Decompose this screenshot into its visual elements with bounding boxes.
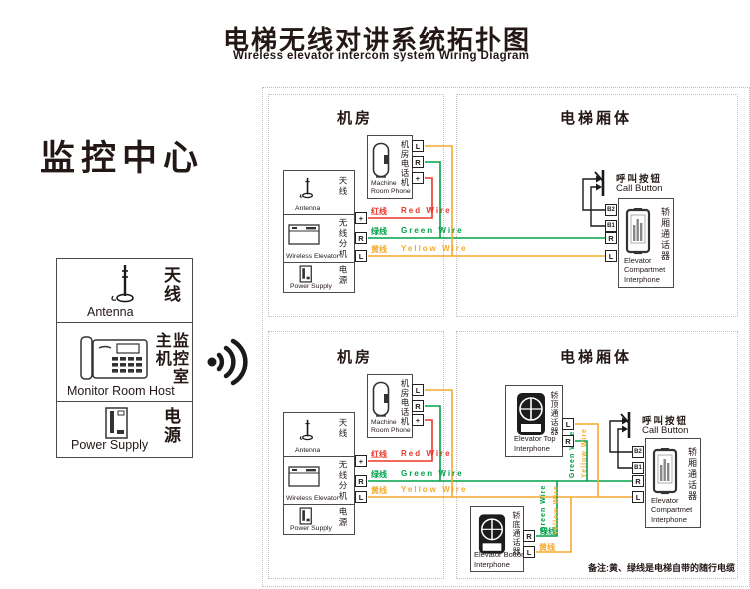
green-wire-label-en: Green Wire (401, 226, 464, 237)
wireless-unit-icon (288, 465, 320, 487)
red-wire-label-en: Red Wire (401, 449, 452, 460)
compartment-zh: 轿厢通话器 (686, 447, 696, 502)
interphone-icon (652, 447, 678, 495)
mr-power-row: 电源 Power Supply (284, 263, 354, 291)
terminal-r: R (412, 400, 424, 412)
mr-power-en: Power Supply (290, 525, 332, 533)
mr-power-zh: 电源 (338, 507, 347, 528)
yellow-wire-label-en: Yellow Wire (401, 485, 467, 496)
antenna-icon (299, 175, 315, 201)
mr-phone-en1: Machine (371, 419, 411, 427)
monitor-power-zh: 电源 (161, 407, 179, 445)
monitor-power-en: Power Supply (71, 438, 148, 452)
speaker-icon (516, 392, 546, 436)
yellow-wire-vertical-label: Yellow Wire (581, 428, 589, 478)
handset-icon (372, 142, 390, 180)
interphone-icon (625, 207, 651, 255)
terminal-r: R (562, 435, 574, 447)
terminal-l: L (605, 250, 617, 262)
terminal-plus: + (412, 414, 424, 426)
terminal-l: L (355, 250, 367, 262)
terminal-plus: + (412, 172, 424, 184)
monitor-antenna-zh: 天线 (161, 266, 179, 304)
terminal-r: R (412, 156, 424, 168)
machine-room-unit-box-top: 天线 Antenna 无线分机 Wireless Elevator 电源 Pow… (283, 170, 355, 293)
machine-room-phone-box-bottom: 机房电话机 Machine Room Phone (367, 374, 413, 438)
compartment-interphone-box-bottom: 轿厢通话器 Elevator Compartmet Interphone (645, 438, 701, 528)
terminal-l: L (412, 140, 424, 152)
compartment-en1: Elevator (624, 256, 665, 265)
monitor-antenna-row: 天线 Antenna (57, 259, 192, 323)
top-interphone-en1: Elevator Top (514, 434, 556, 443)
terminal-l: L (562, 418, 574, 430)
power-supply-icon (299, 265, 313, 283)
mr-phone-en2: Room Phone (371, 427, 411, 435)
terminal-b2: B2 (632, 446, 644, 458)
terminal-r: R (355, 475, 367, 487)
mr-antenna-zh: 天线 (338, 176, 347, 197)
mr-phone-en1: Machine (371, 180, 411, 188)
monitor-host-zh: 监控室主机 (152, 332, 187, 389)
mr-wireless-row: 无线分机 Wireless Elevator (284, 457, 354, 505)
mr-antenna-row: 天线 Antenna (284, 413, 354, 457)
terminal-r: R (523, 530, 535, 542)
wiring-diagram-page: 电梯无线对讲系统拓扑图 Wireless elevator intercom s… (0, 0, 750, 589)
compartment-en3: Interphone (651, 515, 692, 524)
mr-antenna-en: Antenna (295, 447, 320, 455)
call-button-en-top: Call Button (616, 183, 662, 194)
yellow-wire-short-label: 黄线 (539, 542, 555, 553)
mr-wireless-en: Wireless Elevator (286, 495, 339, 503)
terminal-r: R (355, 232, 367, 244)
terminal-r: R (605, 232, 617, 244)
monitor-power-row: 电源 Power Supply (57, 402, 192, 455)
speaker-icon (478, 513, 506, 555)
red-wire-label-en: Red Wire (401, 206, 452, 217)
terminal-r: R (632, 475, 644, 487)
desk-phone-icon (79, 334, 149, 382)
compartment-en2: Compartmet (651, 505, 692, 514)
antenna-icon (299, 417, 315, 443)
elevator-top-interphone-box: 轿顶通话器 Elevator Top Interphone (505, 385, 563, 457)
mr-antenna-zh: 天线 (338, 418, 347, 439)
monitor-host-row: 监控室主机 Monitor Room Host (57, 323, 192, 402)
mr-antenna-en: Antenna (295, 205, 320, 213)
bottom-interphone-en1: Elevator Bottom (474, 550, 527, 559)
compartment-zh: 轿厢通话器 (659, 207, 669, 262)
terminal-b2: B2 (605, 204, 617, 216)
terminal-b1: B1 (632, 462, 644, 474)
bottom-interphone-zh: 轿底通话器 (511, 511, 520, 556)
bottom-interphone-en2: Interphone (474, 560, 527, 569)
mr-power-zh: 电源 (338, 265, 347, 286)
terminal-l: L (355, 491, 367, 503)
green-wire-vertical-label: Green Wire (540, 485, 548, 532)
mr-power-row: 电源 Power Supply (284, 505, 354, 533)
mr-antenna-row: 天线 Antenna (284, 171, 354, 215)
machine-room-unit-box-bottom: 天线 Antenna 无线分机 Wireless Elevator 电源 Pow… (283, 412, 355, 535)
monitor-antenna-en: Antenna (87, 305, 134, 319)
mr-power-en: Power Supply (290, 283, 332, 291)
green-wire-label-en: Green Wire (401, 469, 464, 480)
machine-room-phone-box-top: 机房电话机 Machine Room Phone (367, 135, 413, 199)
mr-wireless-zh: 无线分机 (338, 218, 347, 260)
handset-icon (372, 381, 390, 419)
terminal-l: L (412, 384, 424, 396)
monitor-center-box: 天线 Antenna 监控室主机 Monitor Room Host (56, 258, 193, 458)
top-interphone-zh: 轿顶通话器 (549, 391, 558, 436)
compartment-en2: Compartmet (624, 265, 665, 274)
mr-wireless-row: 无线分机 Wireless Elevator (284, 215, 354, 263)
antenna-icon (109, 263, 139, 305)
power-supply-icon (299, 507, 313, 525)
terminal-l: L (523, 546, 535, 558)
compartment-en3: Interphone (624, 275, 665, 284)
yellow-wire-label-en: Yellow Wire (401, 244, 467, 255)
green-wire-label-zh: 绿线 (371, 226, 387, 237)
wireless-unit-icon (288, 223, 320, 245)
yellow-wire-vertical-label: Yellow Wire (553, 485, 561, 535)
call-button-en-bottom: Call Button (642, 425, 688, 436)
wireless-signal-icon (205, 336, 251, 388)
mr-wireless-en: Wireless Elevator (286, 253, 339, 261)
terminal-l: L (632, 491, 644, 503)
mr-phone-en2: Room Phone (371, 188, 411, 196)
red-wire-label-zh: 红线 (371, 206, 387, 217)
top-interphone-en2: Interphone (514, 444, 556, 453)
footnote: 备注:黄、绿线是电梯自带的随行电缆 (588, 561, 735, 574)
yellow-wire-label-zh: 黄线 (371, 485, 387, 496)
yellow-wire-label-zh: 黄线 (371, 244, 387, 255)
terminal-plus: + (355, 455, 367, 467)
green-wire-label-zh: 绿线 (371, 469, 387, 480)
compartment-interphone-box-top: 轿厢通话器 Elevator Compartmet Interphone (618, 198, 674, 288)
terminal-plus: + (355, 212, 367, 224)
elevator-bottom-interphone-box: 轿底通话器 Elevator Bottom Interphone (470, 506, 524, 572)
power-supply-icon (104, 406, 130, 440)
terminal-b1: B1 (605, 220, 617, 232)
monitor-host-en: Monitor Room Host (67, 384, 175, 398)
compartment-en1: Elevator (651, 496, 692, 505)
red-wire-label-zh: 红线 (371, 449, 387, 460)
mr-wireless-zh: 无线分机 (338, 460, 347, 502)
